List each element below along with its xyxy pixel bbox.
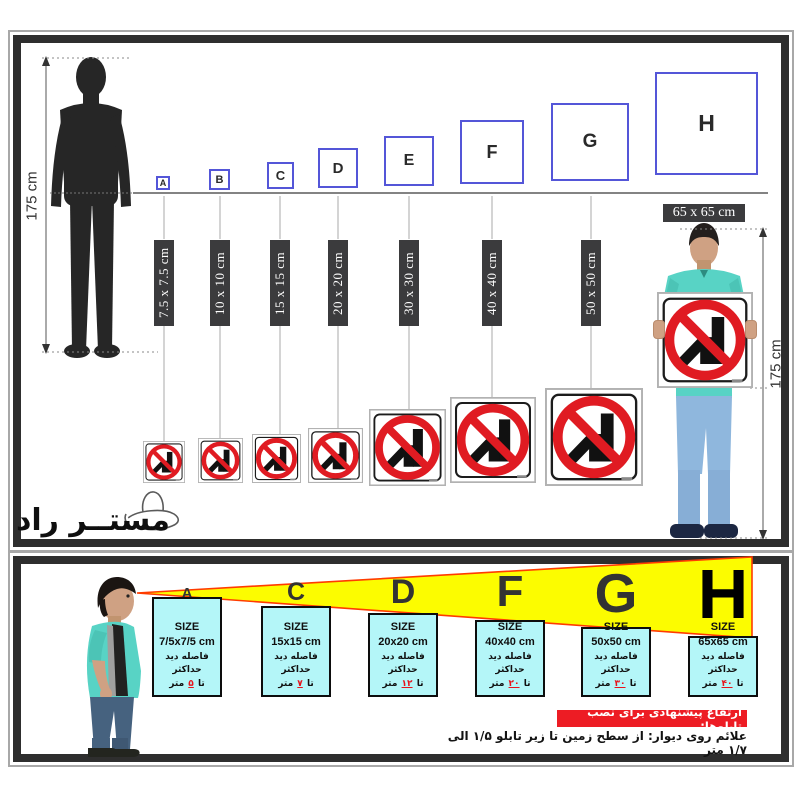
size-panel-a: SIZE 7/5x7/5 cm فاصله دید حداکثر تا ۵ مت… <box>152 597 222 697</box>
distance-number: ۷ <box>296 679 304 689</box>
size-panel-c: SIZE 15x15 cm فاصله دید حداکثر تا ۷ متر <box>261 606 331 697</box>
size-title: SIZE <box>175 619 199 636</box>
distance-label: فاصله دید حداکثر <box>370 651 436 678</box>
model-profile <box>87 577 141 757</box>
size-square-g: G <box>551 103 629 181</box>
distance-value-line: تا ۷ متر <box>278 678 313 692</box>
size-value: 7/5x7/5 cm <box>159 635 215 650</box>
distance-value-line: تا ۵ متر <box>169 678 204 692</box>
product-infographic: A B C D E F G H 7.5 x 7.5 cm 10 x 10 cm … <box>0 0 800 800</box>
distance-number: ۳۰ <box>614 679 627 689</box>
prohibition-sign-c <box>252 434 301 483</box>
model-height-label: 175 cm <box>768 339 784 388</box>
size-bar-f: 40 x 40 cm <box>482 240 502 326</box>
install-height-note: علائم روی دیوار: از سطح زمین تا زیر تابل… <box>430 729 747 747</box>
brand-logo-text: مستــر راد <box>16 506 170 536</box>
size-title: SIZE <box>711 619 735 636</box>
size-square-f: F <box>460 120 524 184</box>
distance-number: ۴۰ <box>721 679 734 689</box>
size-panel-f: SIZE 40x40 cm فاصله دید حداکثر تا ۲۰ متر <box>475 620 545 697</box>
person-silhouette <box>51 57 131 358</box>
distance-value-line: تا ۳۰ متر <box>596 678 637 692</box>
prohibition-sign-d <box>308 428 363 483</box>
size-title: SIZE <box>498 619 522 636</box>
distance-number: ۱۲ <box>401 679 414 689</box>
size-title: SIZE <box>391 619 415 636</box>
size-bar-g: 50 x 50 cm <box>581 240 601 326</box>
install-height-heading: ارتفاع پیشنهادی برای نصب تابلوها: <box>557 710 747 727</box>
size-bar-b: 10 x 10 cm <box>210 240 230 326</box>
left-hand <box>653 320 665 339</box>
cone-letter-f: F <box>478 566 542 618</box>
vision-cone <box>137 557 752 638</box>
prohibition-sign-g <box>545 388 643 486</box>
prohibition-sign-b <box>198 438 243 483</box>
size-title: SIZE <box>604 619 628 636</box>
size-bar-c: 15 x 15 cm <box>270 240 290 326</box>
size-bar-a: 7.5 x 7.5 cm <box>154 240 174 326</box>
prohibition-sign-held <box>657 292 753 388</box>
distance-value-line: تا ۴۰ متر <box>703 678 744 692</box>
size-square-d: D <box>318 148 358 188</box>
size-bar-d: 20 x 20 cm <box>328 240 348 326</box>
distance-label: فاصله دید حداکثر <box>263 651 329 678</box>
prohibition-sign-e <box>369 409 446 486</box>
distance-number: ۲۰ <box>508 679 521 689</box>
cone-letter-c: C <box>271 574 321 610</box>
distance-label: فاصله دید حداکثر <box>477 651 543 678</box>
size-panel-g: SIZE 50x50 cm فاصله دید حداکثر تا ۳۰ متر <box>581 627 651 697</box>
size-square-a: A <box>156 176 170 190</box>
size-title: SIZE <box>284 619 308 636</box>
size-value: 50x50 cm <box>591 635 641 650</box>
size-panel-d: SIZE 20x20 cm فاصله دید حداکثر تا ۱۲ متر <box>368 613 438 697</box>
size-value: 65x65 cm <box>698 635 748 650</box>
size-square-b: B <box>209 169 230 190</box>
distance-value-line: تا ۱۲ متر <box>383 678 424 692</box>
size-value: 40x40 cm <box>485 635 535 650</box>
person-height-label: 175 cm <box>24 171 40 220</box>
size-square-c: C <box>267 162 294 189</box>
prohibition-sign-a <box>143 441 185 483</box>
size-panel-h: SIZE 65x65 cm فاصله دید حداکثر تا ۴۰ متر <box>688 636 758 697</box>
distance-number: ۵ <box>187 679 195 689</box>
size-square-h: H <box>655 72 758 175</box>
size-value: 15x15 cm <box>271 635 321 650</box>
size-bar-e: 30 x 30 cm <box>399 240 419 326</box>
distance-label: فاصله دید حداکثر <box>583 651 649 678</box>
distance-label: فاصله دید حداکثر <box>154 651 220 678</box>
cone-letter-d: D <box>373 570 433 614</box>
prohibition-sign-f <box>450 397 536 483</box>
size-value: 20x20 cm <box>378 635 428 650</box>
right-hand <box>745 320 757 339</box>
size-square-e: E <box>384 136 434 186</box>
cone-letter-g: G <box>581 562 651 624</box>
distance-value-line: تا ۲۰ متر <box>490 678 531 692</box>
person-height-label-wrap: 175 cm <box>0 188 68 204</box>
held-sign-size-label: 65 x 65 cm <box>663 204 745 222</box>
distance-label: فاصله دید حداکثر <box>690 651 756 678</box>
